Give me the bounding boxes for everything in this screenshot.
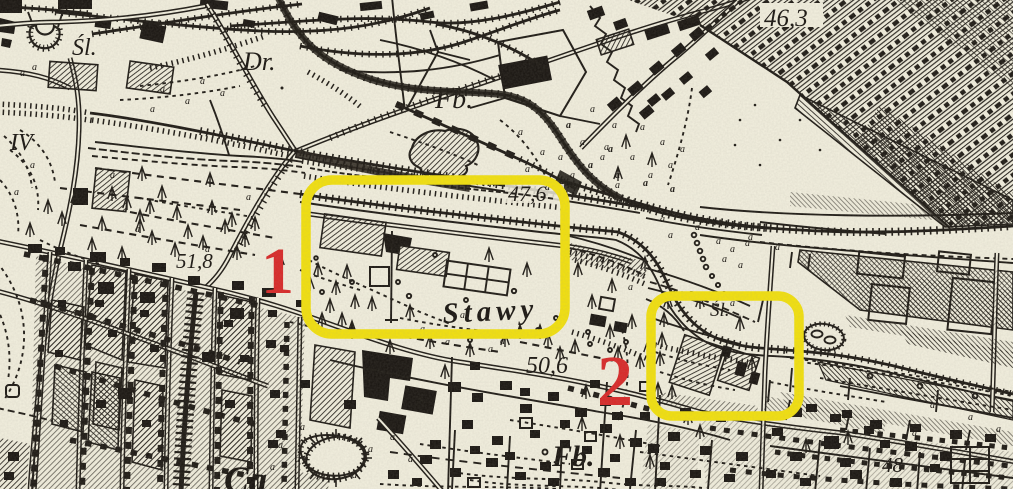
svg-text:a: a	[612, 120, 617, 131]
svg-text:a: a	[660, 137, 665, 148]
svg-text:a: a	[580, 137, 585, 148]
svg-text:a: a	[570, 170, 575, 181]
svg-text:a: a	[722, 254, 727, 265]
svg-text:a: a	[390, 432, 395, 443]
svg-text:a: a	[630, 152, 635, 163]
svg-text:Stawy: Stawy	[442, 293, 539, 330]
svg-text:1: 1	[261, 235, 294, 308]
svg-text:a: a	[648, 170, 653, 181]
svg-text:a: a	[14, 187, 19, 198]
svg-text:a: a	[460, 310, 465, 321]
svg-text:a: a	[668, 160, 673, 171]
svg-text:IV: IV	[9, 130, 35, 156]
svg-text:a: a	[352, 470, 357, 481]
svg-text:a: a	[278, 440, 283, 451]
svg-text:a: a	[600, 152, 605, 163]
svg-text:a: a	[775, 242, 780, 253]
svg-text:a: a	[408, 454, 413, 465]
svg-text:Dr.: Dr.	[242, 47, 276, 76]
svg-text:a: a	[628, 282, 633, 293]
svg-text:a: a	[615, 170, 620, 181]
svg-text:a: a	[300, 422, 305, 433]
svg-text:a: a	[488, 344, 493, 355]
svg-text:Ca: Ca	[224, 460, 267, 489]
svg-text:a: a	[525, 164, 530, 175]
svg-text:a: a	[668, 230, 673, 241]
svg-text:a: a	[32, 62, 37, 73]
svg-text:a: a	[615, 180, 620, 191]
svg-text:a: a	[150, 104, 155, 115]
svg-text:a: a	[588, 160, 593, 171]
svg-text:a: a	[205, 244, 210, 255]
svg-text:a: a	[558, 152, 563, 163]
svg-text:a: a	[968, 412, 973, 423]
svg-text:a: a	[590, 104, 595, 115]
svg-text:a: a	[368, 444, 373, 455]
svg-text:a: a	[643, 178, 648, 189]
svg-text:a: a	[295, 454, 300, 465]
svg-text:a: a	[680, 144, 685, 155]
svg-text:a: a	[730, 244, 735, 255]
svg-text:a: a	[246, 192, 251, 203]
svg-text:a: a	[160, 84, 165, 95]
svg-text:a: a	[540, 147, 545, 158]
svg-text:a: a	[110, 170, 115, 181]
svg-text:a: a	[930, 400, 935, 411]
svg-text:2: 2	[597, 341, 633, 421]
svg-text:a: a	[220, 88, 225, 99]
svg-text:a: a	[185, 96, 190, 107]
svg-text:a: a	[566, 120, 571, 131]
svg-text:a: a	[20, 68, 25, 79]
svg-text:50,6: 50,6	[526, 353, 568, 379]
svg-text:a: a	[660, 214, 665, 225]
svg-text:a: a	[200, 76, 205, 87]
svg-text:a: a	[30, 160, 35, 171]
svg-text:a: a	[640, 122, 645, 133]
svg-text:a: a	[670, 184, 675, 195]
svg-text:a: a	[738, 260, 743, 271]
svg-text:a: a	[608, 144, 613, 155]
svg-text:a: a	[270, 462, 275, 473]
svg-text:46,3: 46,3	[764, 5, 808, 32]
svg-text:Śl.: Śl.	[72, 34, 97, 61]
